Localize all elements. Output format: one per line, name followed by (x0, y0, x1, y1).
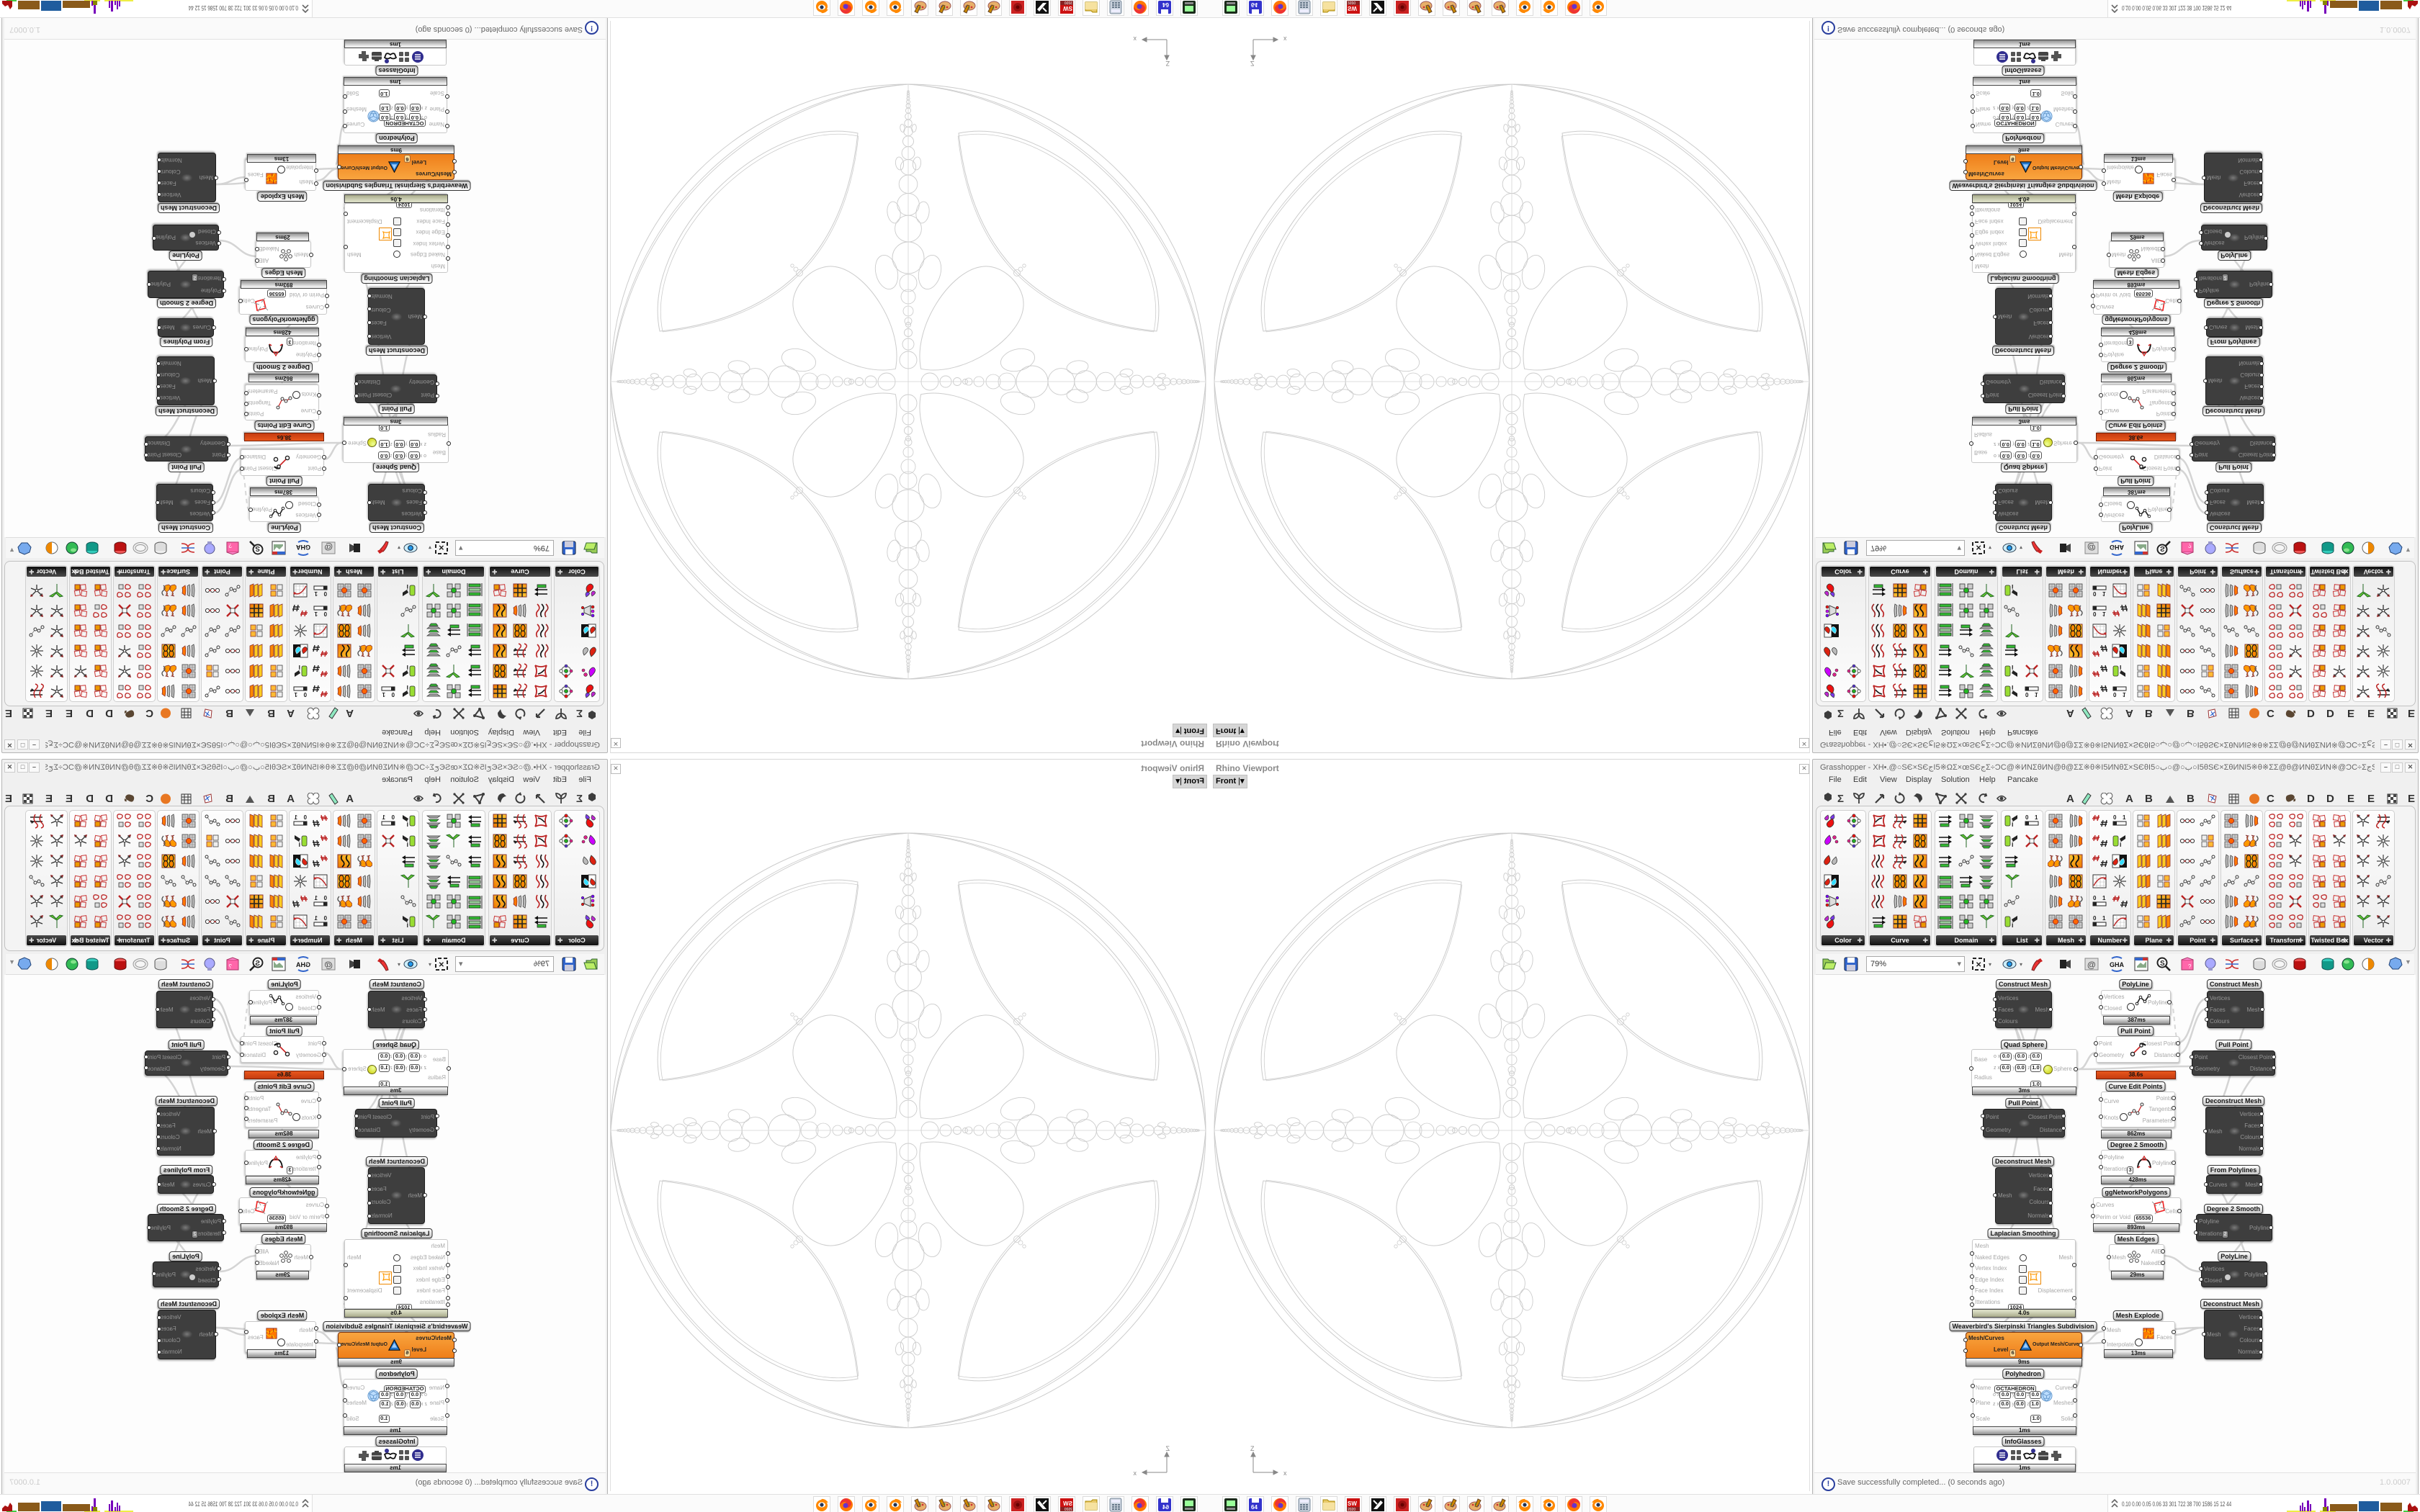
svg-text:SW: SW (1348, 1500, 1357, 1507)
svg-text:✕: ✕ (439, 543, 444, 551)
svg-text:64: 64 (1162, 1504, 1169, 1511)
svg-text:Z: Z (1165, 60, 1170, 67)
svg-text:GHA: GHA (296, 544, 311, 551)
svg-text:?: ? (2188, 963, 2192, 970)
svg-text:S: S (255, 960, 260, 968)
svg-text:SW: SW (1348, 5, 1357, 12)
svg-text:2020: 2020 (1065, 1508, 1072, 1512)
svg-text:x: x (1133, 1470, 1137, 1477)
svg-text:Z: Z (1250, 1445, 1255, 1452)
svg-text:?: ? (228, 542, 232, 549)
svg-text:Σ: Σ (1837, 793, 1844, 805)
svg-text:2020: 2020 (1348, 0, 1355, 4)
svg-text:@: @ (2087, 542, 2096, 552)
svg-text:SW: SW (1063, 5, 1072, 12)
svg-text:Z: Z (1250, 60, 1255, 67)
svg-text:SW: SW (1063, 1500, 1072, 1507)
svg-text:2020: 2020 (1065, 0, 1072, 4)
svg-text:x: x (1283, 1470, 1287, 1477)
svg-text:Σ: Σ (576, 707, 583, 719)
svg-text:64: 64 (1251, 1, 1258, 8)
svg-text:64: 64 (1162, 1, 1169, 8)
svg-text:x: x (1283, 35, 1287, 42)
svg-text:✕: ✕ (1976, 543, 1981, 551)
svg-text:✕: ✕ (1976, 961, 1981, 969)
svg-text:Σ: Σ (1837, 707, 1844, 719)
svg-text:64: 64 (1251, 1504, 1258, 1511)
svg-text:?: ? (2188, 542, 2192, 549)
svg-text:S: S (2160, 960, 2165, 968)
svg-text:S: S (255, 544, 260, 552)
svg-text:Σ: Σ (576, 793, 583, 805)
svg-text:Z: Z (1165, 1445, 1170, 1452)
svg-text:@: @ (324, 542, 333, 552)
svg-text:2020: 2020 (1348, 1508, 1355, 1512)
svg-text:GHA: GHA (2110, 544, 2125, 551)
svg-text:x: x (1133, 35, 1137, 42)
svg-text:GHA: GHA (2110, 961, 2125, 968)
svg-text:GHA: GHA (296, 961, 311, 968)
svg-text:@: @ (2087, 960, 2096, 970)
svg-text:?: ? (228, 963, 232, 970)
svg-text:✕: ✕ (439, 961, 444, 969)
svg-text:S: S (2160, 544, 2165, 552)
svg-text:@: @ (324, 960, 333, 970)
